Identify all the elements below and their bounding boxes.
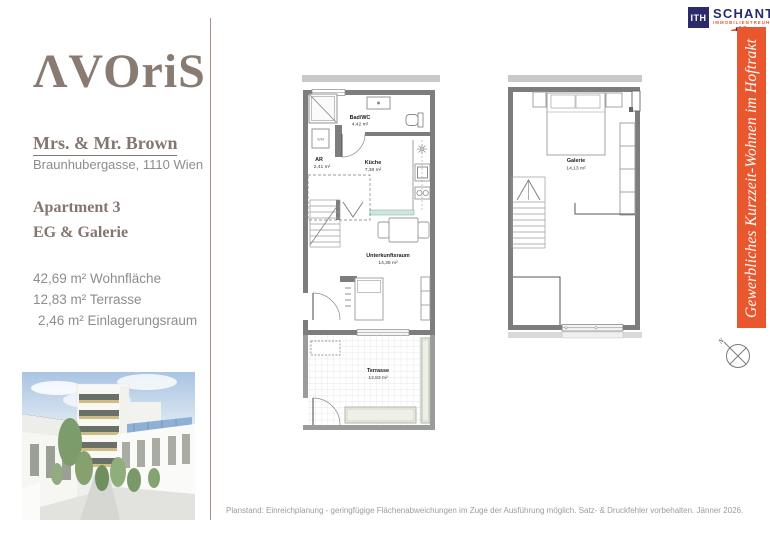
side-banner: Gewerbliches Kurzzeit-Wohnen im Hoftrakt — [737, 27, 766, 328]
compass-icon: N — [714, 330, 760, 376]
area-wohnflaeche: 42,69 m² Wohnfläche — [33, 268, 197, 289]
room-label-badwc: Bad/WC — [350, 115, 371, 121]
eg-top-strip — [302, 75, 440, 82]
broker-subtitle: IMMOBILIENTREUHAND — [713, 20, 770, 25]
room-area-ar: 2,41 m² — [314, 164, 331, 170]
room-area-galerie: 14,13 m² — [566, 166, 586, 172]
wardrobe-icon — [620, 123, 635, 215]
shower-icon — [309, 94, 337, 123]
hob-icon — [417, 144, 427, 154]
room-area-terrasse: 12,83 m² — [368, 375, 388, 381]
room-area-kueche: 7,38 m² — [365, 167, 382, 173]
room-label-unterkunftsraum: Unterkunftsraum — [366, 253, 410, 259]
entrance-door-icon — [303, 293, 340, 320]
room-label-ar: AR — [315, 157, 323, 163]
washing-machine-icon: WM — [312, 129, 329, 148]
area-terrasse: 12,83 m² Terrasse — [33, 289, 197, 310]
building-render-image — [22, 372, 195, 520]
shaft-notch — [629, 91, 640, 112]
planter-right — [421, 338, 430, 423]
apartment-title: Apartment 3 — [33, 199, 121, 217]
apartment-level: EG & Galerie — [33, 224, 128, 242]
radiator-icon — [345, 288, 351, 306]
wc-icon — [406, 113, 423, 127]
vertical-divider — [210, 18, 211, 520]
client-name: Mrs. & Mr. Brown — [33, 133, 177, 154]
area-summary: 42,69 m² Wohnfläche 12,83 m² Terrasse 2,… — [33, 268, 197, 331]
area-einlagerungsraum: 2,46 m² Einlagerungsraum — [33, 310, 197, 331]
floorplan-galerie: Galerie 14,13 m² — [505, 72, 645, 342]
stairs-icon — [310, 200, 363, 247]
oven-icon — [415, 164, 430, 181]
disclaimer-text: Planstand: Einreichplanung - geringfügig… — [226, 506, 746, 515]
galerie-top-strip — [508, 75, 642, 82]
ith-logo: ITH — [688, 7, 709, 28]
floorplan-eg: WM — [297, 72, 445, 434]
avoris-logo: ΛVOriS — [33, 46, 203, 98]
plan-sheet: ΛVOriS Mrs. & Mr. Brown Braunhubergasse,… — [0, 0, 770, 545]
lower-room-outline — [513, 277, 560, 325]
cabinet-icon — [421, 277, 430, 320]
room-label-terrasse: Terrasse — [367, 368, 389, 374]
sink-icon — [415, 187, 430, 199]
double-bed-icon — [533, 92, 622, 155]
wm-label: WM — [317, 138, 324, 142]
compass-north-label: N — [716, 336, 726, 346]
galerie-stairs-icon — [512, 177, 545, 248]
client-address: Braunhubergasse, 1110 Wien — [33, 157, 203, 172]
table-chairs-icon — [378, 218, 429, 242]
planter-bottom — [345, 407, 416, 423]
side-banner-text: Gewerbliches Kurzzeit-Wohnen im Hoftrakt — [737, 27, 766, 328]
room-label-kueche: Küche — [365, 160, 381, 166]
washbasin-icon — [367, 97, 390, 109]
room-area-badwc: 4,42 m² — [352, 122, 369, 128]
kitchen-counter — [370, 210, 414, 215]
terrace-dashed-outline — [311, 341, 340, 355]
room-label-galerie: Galerie — [567, 158, 585, 164]
bath-door-icon — [342, 134, 365, 157]
room-area-unterkunftsraum: 14,35 m² — [378, 260, 398, 266]
bed-icon — [355, 278, 383, 320]
kitchen-icons — [413, 140, 430, 212]
client-name-text: Mrs. & Mr. Brown — [33, 133, 177, 156]
